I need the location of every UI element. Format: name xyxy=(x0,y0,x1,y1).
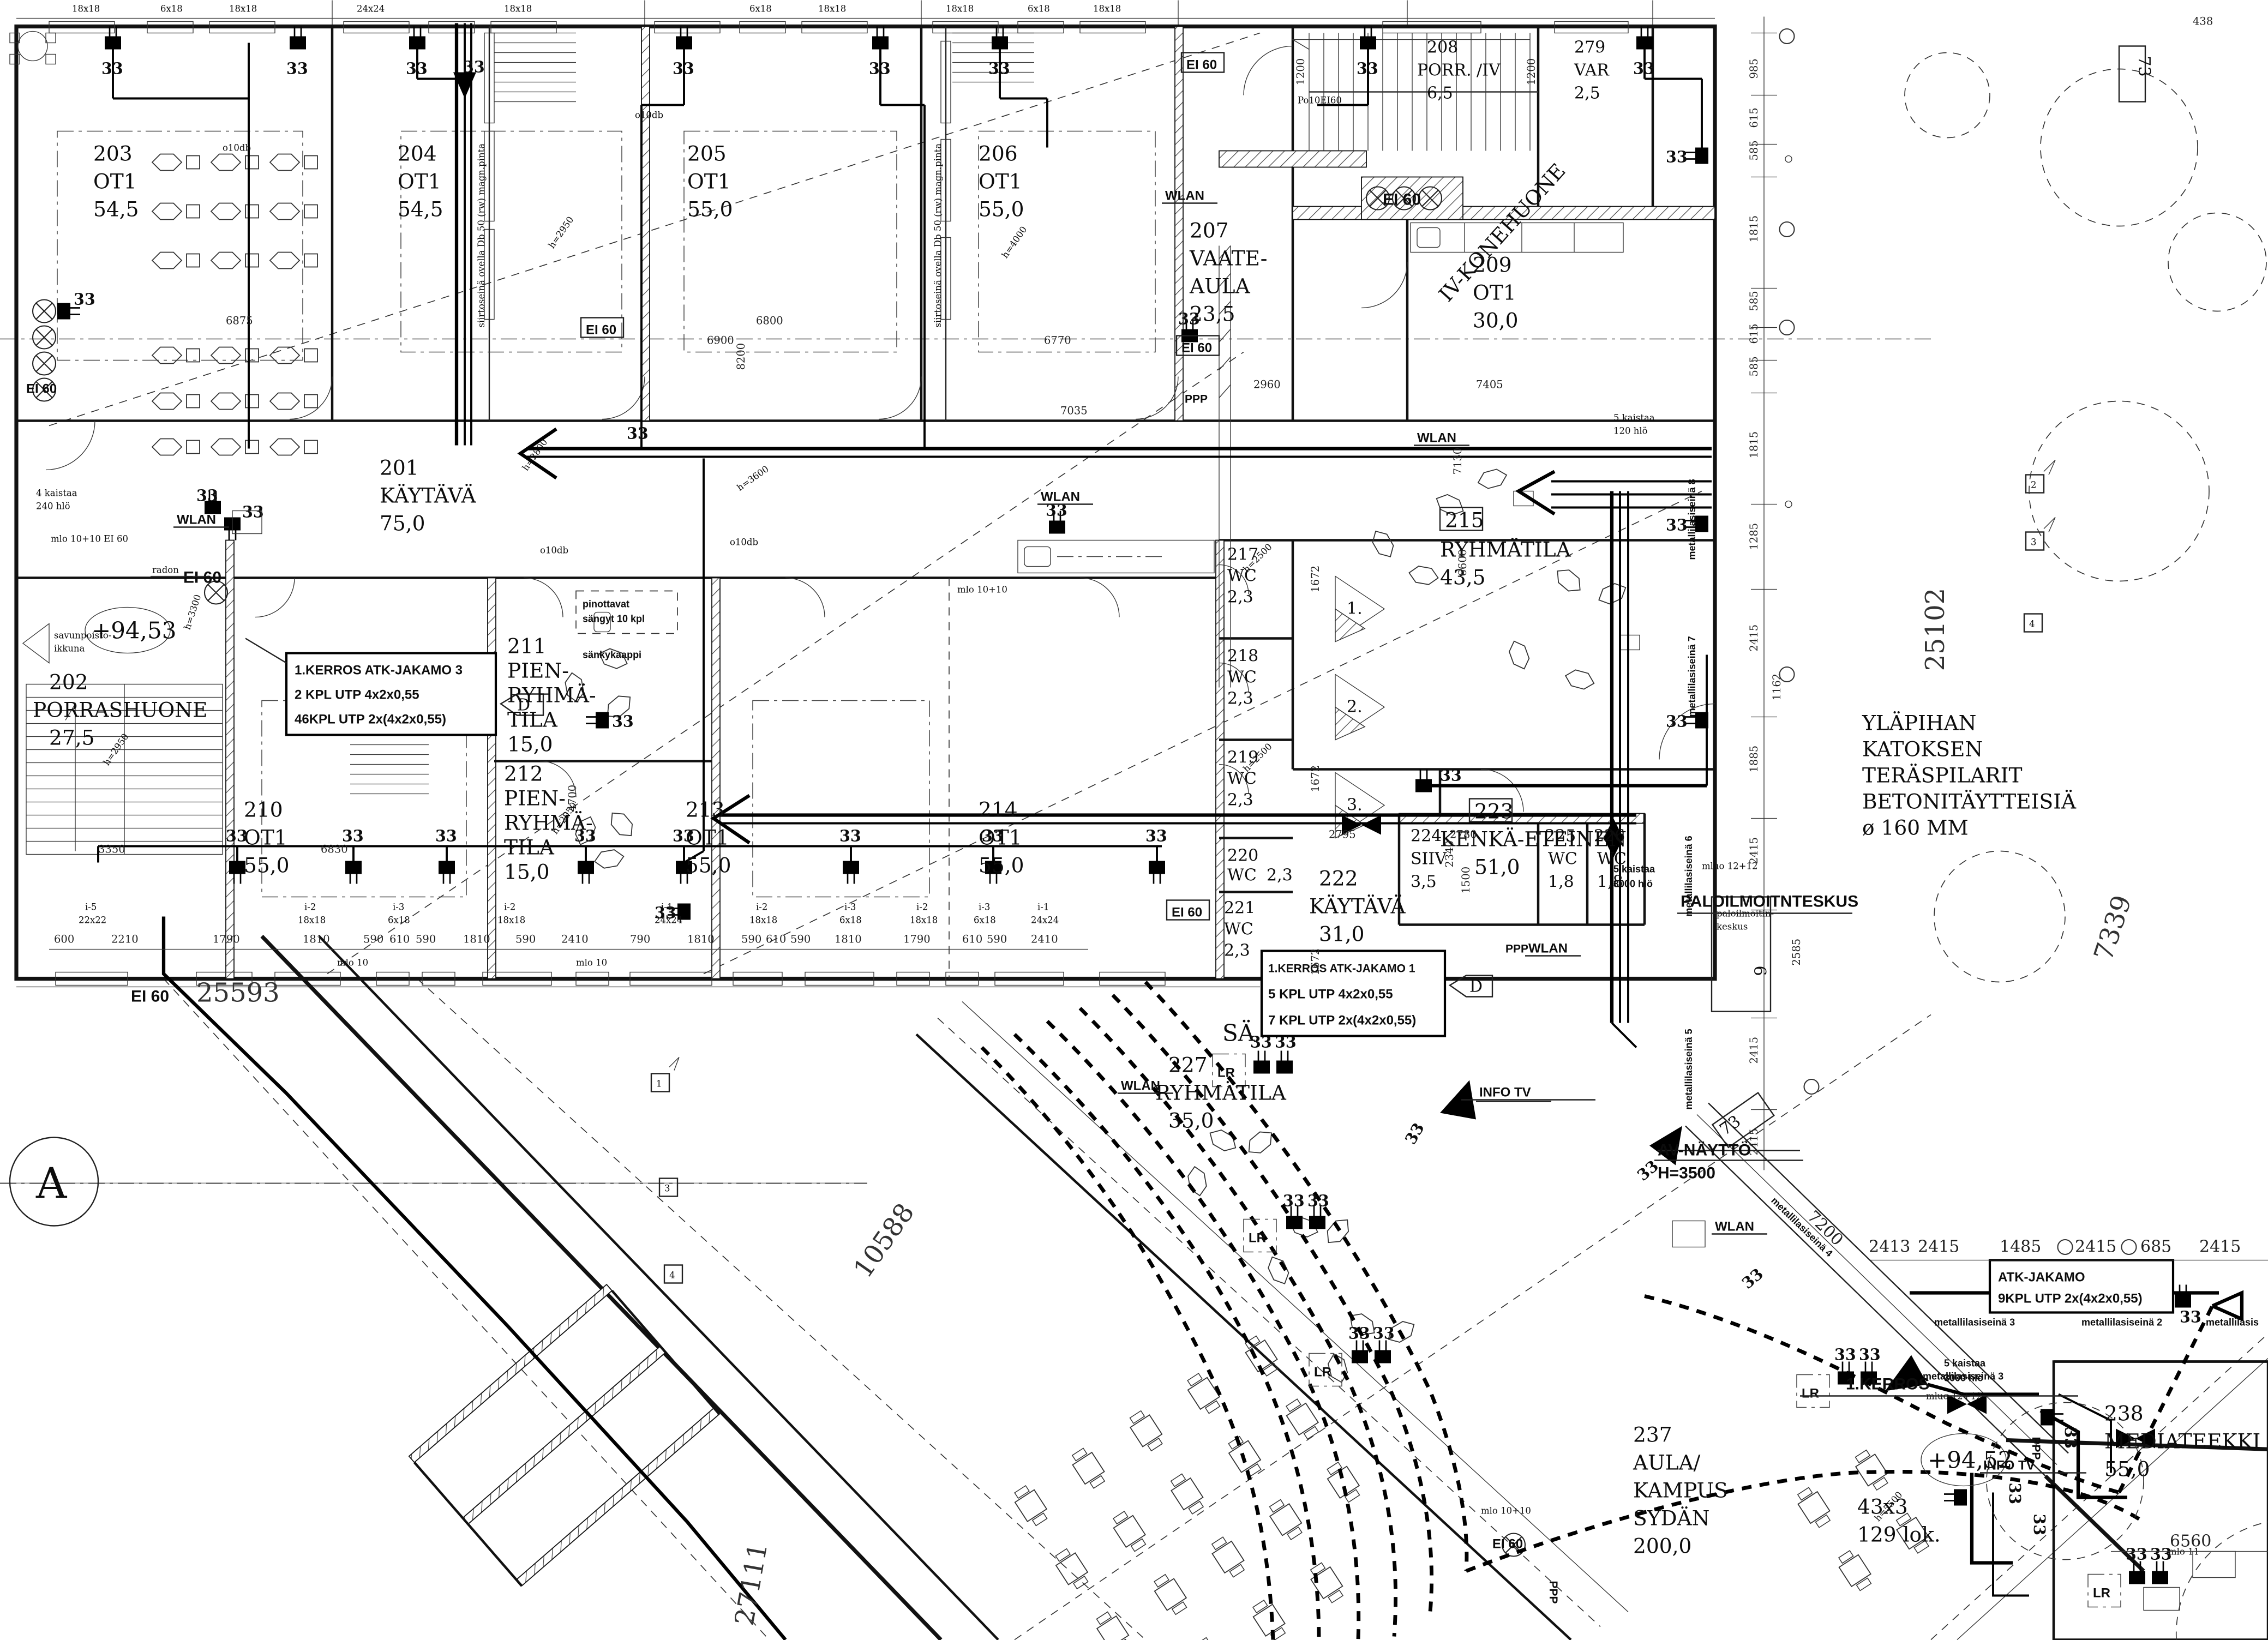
svg-text:600: 600 xyxy=(54,933,74,946)
room-201: 201KÄYTÄVÄ75,0 xyxy=(380,456,477,536)
pinottavat-line2: sängyt 10 kpl xyxy=(583,614,645,624)
svg-text:2410: 2410 xyxy=(561,933,589,946)
svg-text:2415: 2415 xyxy=(1748,1128,1760,1156)
svg-text:6600: 6600 xyxy=(1456,549,1469,576)
sa-label: SÄ xyxy=(1222,1019,1255,1047)
room-206: 206OT155,0 xyxy=(979,142,1024,221)
svg-text:2585: 2585 xyxy=(1790,939,1803,966)
ylapihan-note: YLÄPIHAN KATOKSEN TERÄSPILARIT BETONITÄY… xyxy=(1862,711,2077,840)
svg-text:585: 585 xyxy=(1748,291,1760,311)
svg-text:200,0: 200,0 xyxy=(1633,1534,1691,1558)
svg-text:i-5: i-5 xyxy=(85,902,97,912)
av-naytto-note: AV-NÄYTTÖ H=3500 xyxy=(1654,1142,1803,1182)
svg-text:590: 590 xyxy=(741,933,761,946)
svg-text:18x18: 18x18 xyxy=(504,4,532,14)
svg-text:VAATE-: VAATE- xyxy=(1189,247,1267,271)
svg-text:MEDIATEEKKI: MEDIATEEKKI xyxy=(2104,1429,2260,1453)
triangle-2-label: 2. xyxy=(1347,698,1363,717)
ppp-label: PPP xyxy=(1185,393,1208,406)
svg-text:i-3: i-3 xyxy=(393,902,404,912)
info-tv-label: INFO TV xyxy=(1479,1085,1531,1100)
triangle-1-label: 1. xyxy=(1347,599,1363,618)
mlo-label: mlo 10+10 EI 60 xyxy=(51,534,128,544)
wlan-label: WLAN xyxy=(1528,941,1568,956)
svg-text:210: 210 xyxy=(244,798,283,822)
svg-text:55,0: 55,0 xyxy=(2104,1457,2150,1481)
atk1-line3: 7 KPL UTP 2x(4x2x0,55) xyxy=(1268,1013,1416,1028)
palok-number: 6 xyxy=(1750,966,1769,976)
svg-text:224: 224 xyxy=(1411,827,1442,846)
tag-2: 2 xyxy=(2031,480,2037,490)
svg-text:211: 211 xyxy=(507,634,547,658)
palok-cabinet: paloilmoitin- keskus 6 xyxy=(1712,897,1774,1012)
room-218: 218WC2,3 xyxy=(1227,647,1258,708)
outlet-label: 33 xyxy=(612,712,634,731)
svg-text:985: 985 xyxy=(1748,58,1760,79)
svg-text:206: 206 xyxy=(979,142,1018,166)
metalli1-label: metallilasis xyxy=(2206,1317,2259,1328)
svg-text:PORR. /IV: PORR. /IV xyxy=(1417,61,1501,80)
svg-text:WC: WC xyxy=(1597,850,1627,869)
outlet-label: 33 xyxy=(1666,516,1688,534)
svg-text:212: 212 xyxy=(504,762,543,786)
svg-text:55,0: 55,0 xyxy=(687,197,733,221)
svg-text:6x18: 6x18 xyxy=(160,4,183,14)
outlet-label: 33 xyxy=(242,503,264,521)
outlet-label: 33 xyxy=(1440,766,1462,785)
svg-text:238: 238 xyxy=(2104,1402,2144,1426)
desks-215 xyxy=(1369,467,1640,692)
svg-text:2413: 2413 xyxy=(1869,1237,1910,1257)
room-220: 220WC2,3 xyxy=(1227,846,1293,885)
svg-text:220: 220 xyxy=(1227,846,1258,866)
ei60-label: EI 60 xyxy=(1383,191,1421,209)
svg-text:2,3: 2,3 xyxy=(1227,689,1253,708)
svg-text:RYHMÄ-: RYHMÄ- xyxy=(504,811,593,835)
svg-text:18x18: 18x18 xyxy=(818,4,846,14)
room-226: 226WC1,8 xyxy=(1594,827,1627,892)
svg-text:590: 590 xyxy=(363,933,383,946)
wing-walls xyxy=(262,936,1628,1640)
svg-text:1485: 1485 xyxy=(2000,1237,2041,1257)
svg-text:WC: WC xyxy=(1224,920,1253,939)
svg-text:685: 685 xyxy=(2140,1237,2171,1257)
svg-text:55,0: 55,0 xyxy=(686,854,731,878)
ei60-label: EI 60 xyxy=(1172,905,1202,920)
svg-text:AULA: AULA xyxy=(1189,274,1251,298)
svg-text:1,8: 1,8 xyxy=(1597,873,1623,892)
svg-text:590: 590 xyxy=(790,933,811,946)
svg-text:2340: 2340 xyxy=(1443,840,1456,868)
svg-text:1810: 1810 xyxy=(835,933,862,946)
room-224: 224SIIV3,5 xyxy=(1411,827,1447,892)
svg-text:2795: 2795 xyxy=(1329,828,1356,841)
svg-text:24x24: 24x24 xyxy=(1031,915,1059,926)
room-204: 204OT154,5 xyxy=(398,142,443,221)
svg-text:23,5: 23,5 xyxy=(1190,302,1235,326)
svg-text:6x18: 6x18 xyxy=(839,915,862,926)
outlet-label: 33 xyxy=(2006,1483,2024,1505)
outlet-label: 33 xyxy=(406,59,428,78)
info-tv-label: INFO TV xyxy=(1983,1458,2035,1473)
radon-label: radon xyxy=(152,565,179,575)
svg-text:15,0: 15,0 xyxy=(507,732,553,756)
outlet-label: 33 xyxy=(1666,712,1688,731)
svg-text:7339: 7339 xyxy=(2088,892,2138,964)
svg-text:PORRASHUONE: PORRASHUONE xyxy=(33,698,207,722)
svg-text:1285: 1285 xyxy=(1748,523,1760,550)
room-208: 208PORR. /IV6,5 xyxy=(1417,38,1501,103)
outlet-label: 33 xyxy=(2030,1514,2049,1536)
pinottavat-line1: pinottavat xyxy=(583,599,629,610)
svg-text:i-1: i-1 xyxy=(661,902,673,912)
ppp-label: PPP xyxy=(2030,1437,2042,1460)
svg-text:OT1: OT1 xyxy=(687,170,731,194)
atk-jakamo-9-note: ATK-JAKAMO 9KPL UTP 2x(4x2x0,55) xyxy=(1990,1260,2173,1313)
svg-text:1200: 1200 xyxy=(1525,58,1538,86)
level-mark-a: +94,53 xyxy=(85,608,176,653)
outlet-label: 33 xyxy=(1401,1120,1428,1148)
svg-text:18x18: 18x18 xyxy=(229,4,257,14)
svg-text:51,0: 51,0 xyxy=(1474,855,1520,879)
outlet-label: 33 xyxy=(286,59,308,78)
o10db-label: o10db xyxy=(223,143,251,153)
bottom-dim-row: 600 2210 1790 1810 590 610 590 1810 590 … xyxy=(54,933,1058,946)
svg-text:590: 590 xyxy=(515,933,536,946)
svg-text:PIEN-: PIEN- xyxy=(504,786,566,810)
tag-3: 3 xyxy=(2031,537,2037,548)
lr-label: LR xyxy=(1249,1231,1266,1246)
svg-text:7035: 7035 xyxy=(1060,405,1088,417)
svg-text:24x24: 24x24 xyxy=(357,4,385,14)
svg-text:2415: 2415 xyxy=(1748,624,1760,652)
svg-text:31,0: 31,0 xyxy=(1319,922,1365,946)
triangle-3-label: 3. xyxy=(1347,796,1363,815)
svg-text:PIEN-: PIEN- xyxy=(507,659,569,683)
svg-text:6x18: 6x18 xyxy=(1028,4,1050,14)
ylapihan-line4: BETONITÄYTTEISIÄ xyxy=(1862,790,2077,814)
hlo-label: 240 hlö xyxy=(36,501,70,512)
svg-text:6x18: 6x18 xyxy=(974,915,996,926)
outlet-label: 33 xyxy=(101,59,123,78)
atk9-line2: 9KPL UTP 2x(4x2x0,55) xyxy=(1998,1291,2143,1306)
svg-text:208: 208 xyxy=(1427,38,1458,57)
svg-text:438: 438 xyxy=(2193,15,2213,28)
outlet-label: 33 xyxy=(1373,1324,1395,1343)
outlet-label: 33 xyxy=(627,424,649,443)
pinottavat-note: pinottavat sängyt 10 kpl sänkykaappi xyxy=(576,591,677,660)
svg-text:6x18: 6x18 xyxy=(388,915,410,926)
ylapihan-line3: TERÄSPILARIT xyxy=(1862,764,2022,788)
svg-text:27,5: 27,5 xyxy=(49,726,95,750)
palok-line2: keskus xyxy=(1717,922,1748,932)
svg-text:18x18: 18x18 xyxy=(910,915,938,926)
outlet-label: 33 xyxy=(463,58,485,76)
svg-text:SIIV: SIIV xyxy=(1411,850,1447,869)
svg-text:27111: 27111 xyxy=(729,1540,774,1627)
outlet-label: 33 xyxy=(988,59,1010,78)
svg-text:KÄYTÄVÄ: KÄYTÄVÄ xyxy=(1309,894,1406,918)
room-225: 225WC1,8 xyxy=(1545,827,1577,892)
svg-text:590: 590 xyxy=(987,933,1007,946)
svg-text:10588: 10588 xyxy=(848,1198,920,1283)
svg-text:AULA/: AULA/ xyxy=(1633,1451,1701,1475)
svg-text:i-3: i-3 xyxy=(979,902,990,912)
outlet-label: 33 xyxy=(869,59,891,78)
room-238: 238MEDIATEEKKI55,0 xyxy=(2104,1402,2260,1481)
svg-text:55,0: 55,0 xyxy=(979,854,1024,878)
room-222: 222KÄYTÄVÄ31,0 xyxy=(1309,867,1406,946)
svg-text:1162: 1162 xyxy=(1771,674,1783,701)
o10db-label: o10db xyxy=(635,110,663,121)
o10db-label: o10db xyxy=(730,537,758,548)
svg-text:i-2: i-2 xyxy=(756,902,767,912)
svg-text:215: 215 xyxy=(1445,508,1484,532)
svg-text:30,0: 30,0 xyxy=(1473,309,1519,333)
siirtoseina-label: siirtoseinä ovella Db 50 (rw) magn.pinta xyxy=(933,143,943,328)
grid-letter: A xyxy=(35,1160,68,1209)
svg-text:203: 203 xyxy=(93,142,133,166)
svg-text:8200: 8200 xyxy=(735,343,747,370)
ei60-label: EI 60 xyxy=(183,569,221,587)
svg-text:6x18: 6x18 xyxy=(749,4,772,14)
ei60-label: EI 60 xyxy=(1181,341,1212,356)
outlet-label: 33 xyxy=(435,827,457,845)
svg-text:2410: 2410 xyxy=(1031,933,1058,946)
outlet-label: 33 xyxy=(2126,1545,2147,1564)
svg-text:1790: 1790 xyxy=(903,933,931,946)
room-214: 214OT155,0 xyxy=(979,798,1024,878)
svg-text:610: 610 xyxy=(962,933,982,946)
room-279: 279VAR2,5 xyxy=(1574,38,1610,103)
svg-text:OT1: OT1 xyxy=(686,826,729,850)
svg-text:6,5: 6,5 xyxy=(1427,84,1453,103)
svg-text:i-2: i-2 xyxy=(916,902,928,912)
outlet-label: 33 xyxy=(196,486,218,505)
svg-text:2415: 2415 xyxy=(1918,1237,1959,1257)
metalli8-label: metallilasiseinä 8 xyxy=(1687,479,1697,560)
room-210: 210OT155,0 xyxy=(244,798,290,878)
svg-text:RYHMÄTILA: RYHMÄTILA xyxy=(1155,1081,1287,1105)
wlan-label: WLAN xyxy=(1417,431,1456,446)
svg-text:2,3: 2,3 xyxy=(1224,941,1250,960)
grid-row-marker: A xyxy=(10,1138,98,1226)
metalli2-label: metallilasiseinä 2 xyxy=(2081,1317,2162,1328)
svg-text:1790: 1790 xyxy=(213,933,240,946)
svg-text:610: 610 xyxy=(766,933,786,946)
svg-text:790: 790 xyxy=(630,933,650,946)
svg-text:3350: 3350 xyxy=(98,843,125,856)
right-dim-chain: 985 615 585 1815 585 615 585 1815 1285 2… xyxy=(1748,33,1803,1156)
mlo1010-label: mlo 10+10 xyxy=(957,585,1007,595)
metalli7-label: metallilasiseinä 7 xyxy=(1687,636,1697,717)
svg-text:OT1: OT1 xyxy=(979,826,1022,850)
svg-text:201: 201 xyxy=(380,456,419,480)
tag-73-top: 73 xyxy=(2134,56,2153,77)
svg-text:3,5: 3,5 xyxy=(1411,873,1437,892)
room-215: 215RYHMÄTILA43,5 xyxy=(1440,508,1571,590)
svg-text:OT1: OT1 xyxy=(244,826,287,850)
hlo-label: 120 hlö xyxy=(1613,426,1648,436)
outlet-label: 33 xyxy=(1633,59,1655,78)
palok-title: PALOILMOITNTESKUS xyxy=(1681,893,1858,911)
svg-text:6770: 6770 xyxy=(1044,334,1071,347)
atk3-line1: 1.KERROS ATK-JAKAMO 3 xyxy=(295,663,463,678)
lr-label: LR xyxy=(1217,1066,1235,1080)
svg-text:OT1: OT1 xyxy=(1473,281,1516,305)
room-203: 203OT154,5 xyxy=(93,142,139,221)
svg-text:1672: 1672 xyxy=(1309,948,1322,976)
svg-text:2415: 2415 xyxy=(2199,1237,2241,1257)
outlet-label: 33 xyxy=(1666,148,1688,166)
svg-text:25102: 25102 xyxy=(1920,588,1951,671)
svg-text:2,3: 2,3 xyxy=(1227,588,1253,607)
svg-text:h=2950: h=2950 xyxy=(547,214,576,250)
tag-4: 4 xyxy=(669,1270,675,1281)
wlan-label: WLAN xyxy=(1041,490,1080,504)
atk1-line1: 1.KERROS ATK-JAKAMO 1 xyxy=(1268,963,1415,975)
d-letter: D xyxy=(1469,977,1483,996)
outlet-label: 33 xyxy=(342,827,364,845)
svg-text:2780: 2780 xyxy=(1450,828,1477,841)
wlan-label: WLAN xyxy=(1715,1220,1754,1234)
metalli6-label: metallilasiseinä 6 xyxy=(1683,836,1694,916)
svg-text:615: 615 xyxy=(1748,323,1760,344)
av-line1: AV-NÄYTTÖ xyxy=(1658,1142,1751,1160)
svg-text:610: 610 xyxy=(389,933,410,946)
lr-label: LR xyxy=(2093,1586,2110,1601)
ylapihan-line1: YLÄPIHAN xyxy=(1862,711,1976,735)
atk-jakamo-1-note: 1.KERROS ATK-JAKAMO 1 5 KPL UTP 4x2x0,55… xyxy=(1262,951,1445,1036)
svg-text:207: 207 xyxy=(1190,219,1229,243)
svg-text:2415: 2415 xyxy=(2075,1237,2116,1257)
svg-text:15,0: 15,0 xyxy=(504,860,550,884)
svg-text:6900: 6900 xyxy=(707,334,734,347)
svg-text:WC: WC xyxy=(1227,770,1257,789)
av-line2: H=3500 xyxy=(1658,1164,1715,1182)
outlet-label: 33 xyxy=(2180,1308,2201,1326)
svg-text:54,5: 54,5 xyxy=(398,197,443,221)
svg-text:TILA: TILA xyxy=(507,708,558,732)
ei60-label: EI 60 xyxy=(26,382,57,397)
triangle-markers: 1. 2. 3. xyxy=(1335,576,1384,838)
wlan-label: WLAN xyxy=(1121,1079,1160,1094)
outlet-label: 33 xyxy=(1348,1324,1370,1343)
svg-text:OT1: OT1 xyxy=(398,170,441,194)
svg-text:18x18: 18x18 xyxy=(497,915,525,926)
svg-text:h=3600: h=3600 xyxy=(735,464,770,493)
svg-text:237: 237 xyxy=(1633,1423,1672,1447)
atk3-line2: 2 KPL UTP 4x2x0,55 xyxy=(295,688,419,702)
svg-text:1815: 1815 xyxy=(1748,431,1760,459)
svg-text:7130: 7130 xyxy=(1451,448,1464,475)
kaistaa-label: 4 kaistaa xyxy=(36,488,77,498)
svg-text:WC: WC xyxy=(1227,866,1257,885)
room-207: 207VAATE-AULA23,5 xyxy=(1189,219,1267,326)
svg-text:1815: 1815 xyxy=(1748,215,1760,243)
metalli3-label: metallilasiseinä 3 xyxy=(1934,1317,2015,1328)
level-value: +94,53 xyxy=(92,617,176,644)
tag-1: 1 xyxy=(656,1079,662,1089)
outlet-label: 33 xyxy=(1307,1192,1329,1210)
svg-text:OT1: OT1 xyxy=(93,170,137,194)
svg-text:18x18: 18x18 xyxy=(72,4,100,14)
svg-text:18x18: 18x18 xyxy=(298,915,326,926)
svg-text:1810: 1810 xyxy=(303,933,330,946)
svg-text:2415: 2415 xyxy=(1748,837,1760,864)
kerros-label: 1.KERROS xyxy=(1846,1375,1929,1393)
svg-text:55,0: 55,0 xyxy=(244,854,290,878)
svg-text:279: 279 xyxy=(1574,38,1605,57)
wlan-label: WLAN xyxy=(1165,189,1204,203)
svg-text:2415: 2415 xyxy=(1748,1037,1760,1064)
outlet-label: 33 xyxy=(1738,1264,1767,1293)
svg-text:55,0: 55,0 xyxy=(979,197,1024,221)
atk-jakamo-3-note: 1.KERROS ATK-JAKAMO 3 2 KPL UTP 4x2x0,55… xyxy=(245,639,496,735)
svg-text:75,0: 75,0 xyxy=(380,512,425,536)
ylapihan-line5: ø 160 MM xyxy=(1862,816,1969,840)
atk1-line2: 5 KPL UTP 4x2x0,55 xyxy=(1268,987,1393,1002)
outlet-label: 33 xyxy=(1283,1192,1305,1210)
svg-text:1810: 1810 xyxy=(687,933,715,946)
svg-text:202: 202 xyxy=(49,670,88,694)
svg-text:54,5: 54,5 xyxy=(93,197,139,221)
tag-3: 3 xyxy=(664,1184,670,1194)
svg-text:6830: 6830 xyxy=(321,843,348,856)
room-205: 205OT155,0 xyxy=(687,142,733,221)
svg-text:2,3: 2,3 xyxy=(1227,791,1253,810)
svg-text:i-2: i-2 xyxy=(304,902,316,912)
outlet-label: 33 xyxy=(839,827,861,845)
svg-text:214: 214 xyxy=(979,798,1018,822)
svg-text:i-1: i-1 xyxy=(1037,902,1049,912)
room-221: 221WC2,3 xyxy=(1224,899,1255,960)
floor-plan-sheet: 1. 2. 3. xyxy=(0,0,2268,1640)
svg-text:WC: WC xyxy=(1227,668,1257,687)
outlet-label: 33 xyxy=(2061,1427,2080,1449)
room-213: 213OT155,0 xyxy=(686,798,731,878)
atk9-line1: ATK-JAKAMO xyxy=(1998,1270,2085,1285)
svg-text:221: 221 xyxy=(1224,899,1255,918)
svg-text:h=3300: h=3300 xyxy=(182,593,203,631)
svg-text:223: 223 xyxy=(1474,800,1514,824)
svg-text:218: 218 xyxy=(1227,647,1258,666)
svg-text:22x22: 22x22 xyxy=(79,915,106,926)
ppp-label: PPP xyxy=(1505,943,1528,956)
svg-text:6875: 6875 xyxy=(226,315,253,327)
svg-text:204: 204 xyxy=(398,142,437,166)
lr-label: LR xyxy=(1314,1365,1331,1380)
outlet-label: 33 xyxy=(1859,1345,1881,1364)
svg-text:205: 205 xyxy=(687,142,727,166)
room-237: 237AULA/KAMPUSSYDÄN200,0 xyxy=(1633,1423,1728,1558)
tag-4: 4 xyxy=(2029,619,2035,629)
po10ei60-label: Po10EI60 xyxy=(1298,95,1342,106)
svg-text:615: 615 xyxy=(1748,107,1760,128)
kaistaa-label: 5 kaistaa xyxy=(1944,1358,1986,1369)
metalli-wall-labels: metallilasiseinä 8 metallilasiseinä 7 me… xyxy=(1683,479,2259,1381)
svg-text:1672: 1672 xyxy=(1309,765,1322,792)
svg-text:585: 585 xyxy=(1748,356,1760,376)
outlet-label: 33 xyxy=(1834,1345,1856,1364)
ei60-label: EI 60 xyxy=(1492,1537,1523,1552)
ei60-label: EI 60 xyxy=(131,988,169,1006)
svg-text:SYDÄN: SYDÄN xyxy=(1633,1506,1709,1530)
svg-text:24x24: 24x24 xyxy=(655,915,682,926)
svg-text:18x18: 18x18 xyxy=(1093,4,1121,14)
svg-text:WC: WC xyxy=(1548,850,1577,869)
svg-text:KÄYTÄVÄ: KÄYTÄVÄ xyxy=(380,484,477,508)
